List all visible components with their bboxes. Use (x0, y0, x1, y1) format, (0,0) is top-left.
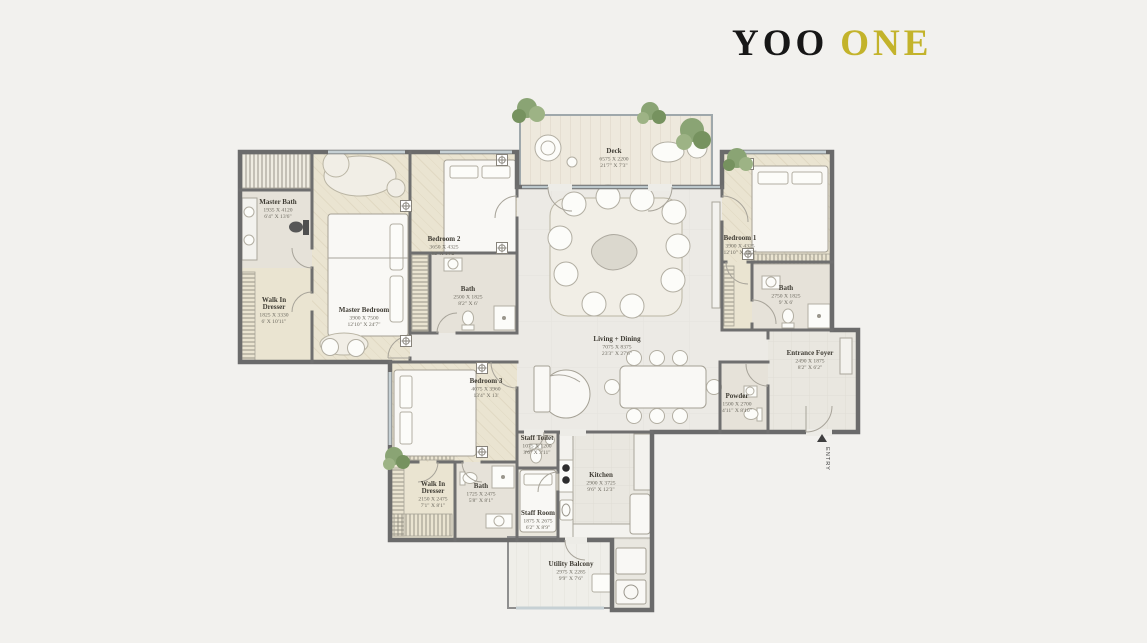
bed-bedroom-1 (752, 166, 828, 252)
room-label-staff-toilet: Staff Toilet1075 X 12003'6" X 3'11" (521, 434, 555, 456)
sofa-set (548, 185, 690, 318)
room-label-bedroom-2: Bedroom 23650 X 432512' X 14'2" (428, 235, 461, 257)
floor-plan: ENTRY Master Bath1935 X 41206'4" X 13'6"… (0, 0, 1147, 643)
room-label-bedroom-1: Bedroom 13900 X 432512'10" X 14'2" (724, 234, 757, 256)
room-label-powder: Powder1500 X 27004'11" X 8'10" (722, 392, 752, 414)
room-label-staff-room: Staff Room1875 X 26756'2" X 8'9" (521, 509, 555, 531)
foyer-cabinet (840, 338, 852, 374)
room-label-walk-in-dresser-master: Walk InDresser1825 X 33306' X 10'11" (259, 296, 288, 325)
room-label-kitchen: Kitchen2900 X 37259'6" X 12'3" (586, 471, 615, 493)
entry-marker: ENTRY (817, 434, 830, 471)
entry-label: ENTRY (824, 447, 830, 471)
floor-passage-foyer (722, 330, 768, 362)
room-label-walk-in-dresser-3: Walk InDresser2150 X 24757'1" X 8'1" (418, 480, 447, 509)
room-label-master-bath: Master Bath1935 X 41206'4" X 13'6" (259, 198, 296, 220)
tv-console (712, 202, 720, 308)
floor-corridor (410, 333, 517, 362)
room-label-bedroom-3: Bedroom 34075 X 396013'4" X 13' (470, 377, 503, 399)
bed-bedroom-3 (394, 370, 476, 456)
fridge (630, 494, 650, 534)
